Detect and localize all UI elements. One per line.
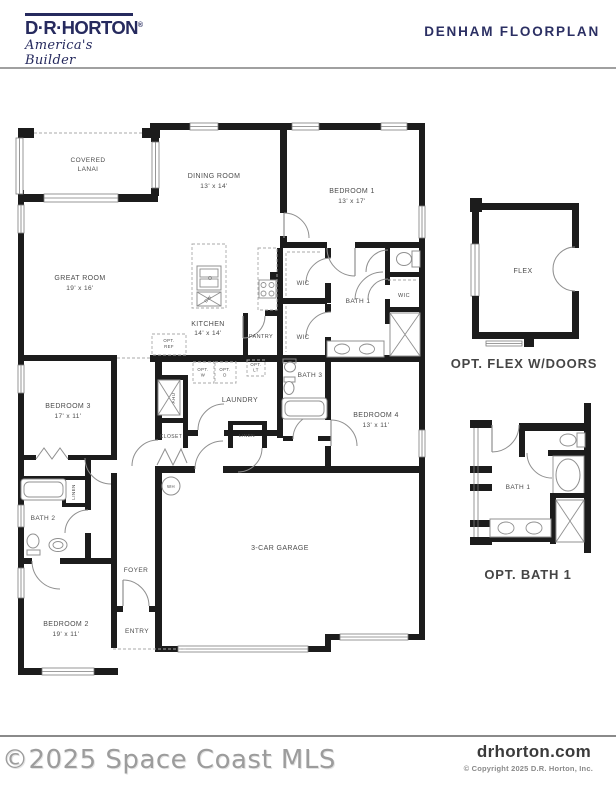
- copyright-text: © Copyright 2025 D.R. Horton, Inc.: [464, 764, 593, 773]
- floorplan-drawing: COVERED LANAI DINING ROOM 13' x 14' BEDR…: [0, 0, 616, 800]
- label-opt-ref: OPT.: [163, 338, 174, 343]
- label-opt-d-2: D: [223, 373, 227, 378]
- floorplan-page: D·R·HORTON® America's Builder DENHAM FLO…: [0, 0, 616, 800]
- label-bath-1: BATH 1: [346, 298, 371, 305]
- dims-bedroom-2: 19' x 11': [53, 631, 80, 638]
- label-covered-lanai-2: LANAI: [78, 166, 99, 173]
- label-covered-lanai: COVERED: [71, 157, 106, 164]
- drhorton-website: drhorton.com: [477, 742, 591, 762]
- label-ahu: AHU: [171, 393, 176, 404]
- label-wic-c: WIC: [297, 335, 310, 341]
- caption-opt-flex: OPT. FLEX W/DOORS: [451, 356, 598, 371]
- inset-opt-flex: FLEX OPT. FLEX W/DOORS: [451, 198, 598, 371]
- dims-bedroom-1: 13' x 17': [338, 198, 365, 205]
- label-opt-w-2: W: [201, 373, 206, 378]
- dims-dining-room: 13' x 14': [200, 183, 227, 190]
- label-opt-lt-2: LT: [253, 368, 259, 373]
- dims-great-room: 19' x 16': [66, 285, 93, 292]
- label-opt-bath1-room: BATH 1: [506, 484, 531, 491]
- labels-layer: COVERED LANAI DINING ROOM 13' x 14' BEDR…: [31, 157, 410, 638]
- label-flex-room: FLEX: [513, 268, 532, 275]
- label-wic-b: WIC: [398, 293, 410, 299]
- label-garage: 3-CAR GARAGE: [251, 545, 309, 552]
- label-bath-2: BATH 2: [31, 515, 56, 522]
- label-opt-d: OPT.: [219, 367, 230, 372]
- label-laundry: LAUNDRY: [222, 397, 258, 404]
- label-wic-a: WIC: [297, 281, 310, 287]
- label-entry: ENTRY: [125, 628, 149, 635]
- label-water-heater: WH: [167, 484, 175, 489]
- inset-opt-bath1: BATH 1 OPT. BATH 1: [470, 403, 591, 582]
- mls-watermark: ©2025 Space Coast MLS: [2, 745, 336, 775]
- label-dining-room: DINING ROOM: [188, 173, 241, 180]
- label-opt-lt: OPT.: [250, 362, 261, 367]
- label-great-room: GREAT ROOM: [54, 275, 105, 282]
- label-bedroom-1: BEDROOM 1: [329, 188, 375, 195]
- dims-bedroom-4: 13' x 11': [363, 422, 390, 429]
- label-bedroom-4: BEDROOM 4: [353, 412, 399, 419]
- dims-kitchen: 14' x 14': [194, 330, 221, 337]
- label-linen-hall: LINEN: [239, 433, 255, 439]
- label-linen-bath2: LINEN: [71, 484, 76, 500]
- label-bedroom-2: BEDROOM 2: [43, 621, 89, 628]
- label-closet: CLOSET: [160, 434, 182, 440]
- dashed-layer: [34, 133, 417, 649]
- dims-bedroom-3: 17' x 11': [55, 413, 82, 420]
- label-bath-3: BATH 3: [298, 372, 323, 379]
- label-bedroom-3: BEDROOM 3: [45, 403, 91, 410]
- label-opt-ref-2: REF: [164, 344, 174, 349]
- footer-divider: [0, 735, 616, 737]
- label-foyer: FOYER: [124, 567, 148, 574]
- label-pantry: PANTRY: [249, 334, 273, 340]
- caption-opt-bath1: OPT. BATH 1: [484, 567, 571, 582]
- label-kitchen: KITCHEN: [191, 321, 225, 328]
- windows-layer: [16, 123, 425, 675]
- label-opt-w: OPT.: [197, 367, 208, 372]
